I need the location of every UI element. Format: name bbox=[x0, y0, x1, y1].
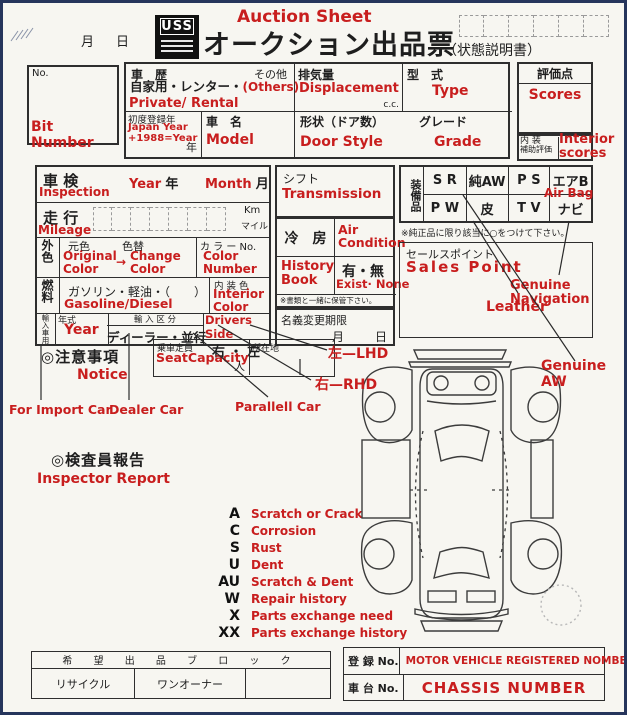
auction-sheet: 月 日 USS Auction Sheet オークション出品票 （状態説明書） … bbox=[0, 0, 627, 715]
location-cell: 所在地 bbox=[249, 340, 333, 375]
seat-unit-label: 人 bbox=[234, 358, 245, 374]
history-options-red: (Others) bbox=[243, 80, 300, 94]
import-car-label: 輸入車用 bbox=[40, 314, 51, 344]
seat-capacity-box: 乗車定員 SeatCapacity 人 所在地 bbox=[153, 339, 335, 377]
fuel-label: 燃料 bbox=[39, 279, 56, 311]
original-color-annotation: Original Color bbox=[63, 250, 119, 275]
inspector-report-annotation: Inspector Report bbox=[37, 471, 170, 487]
genuine-aw-annotation: Genuine AW bbox=[541, 358, 624, 390]
legend-item: UDent bbox=[206, 557, 407, 574]
color-arrow: → bbox=[116, 255, 126, 269]
interior-color-cell: 内 装 色 Interior Color bbox=[209, 277, 270, 313]
ac-history-box: 冷 房 Air Condition History Book 有・無 Exist… bbox=[275, 217, 395, 308]
page-title: オークション出品票 bbox=[203, 23, 455, 62]
rhd-annotation: 右—RHD bbox=[315, 374, 377, 394]
chassis-no-annotation: CHASSIS NUMBER bbox=[404, 675, 604, 700]
legend-code: S bbox=[206, 540, 240, 556]
mile-label: マイル bbox=[241, 219, 268, 232]
history-options: 自家用・レンター・(Others) bbox=[130, 80, 299, 94]
displacement-annotation: Displacement bbox=[299, 81, 399, 96]
page-subtitle: （状態説明書） bbox=[443, 40, 541, 60]
registration-no-label: 登 録 No. bbox=[344, 648, 400, 674]
pencil-mark bbox=[11, 28, 33, 41]
fuel-annotation: Gasoline/Diesel bbox=[64, 296, 173, 311]
interior-scores-annotation: Interior scores bbox=[559, 133, 621, 160]
color-number-annotation: Color Number bbox=[203, 250, 263, 275]
legend-code: X bbox=[206, 608, 240, 624]
bit-number-annotation: Bit Number bbox=[31, 119, 117, 151]
history-annotation: Private/ Rental bbox=[129, 96, 238, 111]
legend-item: CCorrosion bbox=[206, 523, 407, 540]
legend-item: XXParts exchange history bbox=[206, 625, 407, 642]
interior-label-2: 補助評価 bbox=[520, 146, 558, 154]
dealer-car-annotation: Dealer Car bbox=[109, 402, 183, 417]
recycle-cell: リサイクル bbox=[32, 669, 135, 698]
seat-capacity-cell: 乗車定員 SeatCapacity 人 bbox=[154, 340, 250, 375]
ac-label: 冷 房 bbox=[285, 228, 327, 248]
legend-item: AScratch or Crack bbox=[206, 506, 407, 523]
vehicle-info-box: 車 歴 その他 自家用・レンター・(Others) Private/ Renta… bbox=[124, 62, 510, 159]
change-color-annotation: Change Color bbox=[130, 250, 186, 275]
history-cell: 車 歴 その他 自家用・レンター・(Others) Private/ Renta… bbox=[126, 64, 295, 112]
inspector-report-label: ◎検査員報告 bbox=[51, 449, 145, 470]
lhd-annotation: 左—LHD bbox=[328, 343, 388, 363]
inspection-month: Month 月 bbox=[205, 173, 269, 192]
genuine-parts-note: ※純正品に限り該当に○をつけて下さい。 bbox=[401, 226, 569, 239]
cc-unit-label: c.c. bbox=[383, 100, 399, 110]
leather-annotation: Leather bbox=[486, 299, 547, 315]
header-code-boxes bbox=[459, 15, 609, 37]
block-header: 希 望 出 品 ブ ロ ッ ク bbox=[32, 652, 330, 669]
legend-desc: Parts exchange history bbox=[251, 626, 407, 640]
inspection-annotation: Inspection bbox=[39, 185, 110, 199]
legend-code: U bbox=[206, 557, 240, 573]
equip-sunroof: S R bbox=[424, 167, 466, 194]
legend-desc: Repair history bbox=[251, 592, 347, 606]
month-label: 月 bbox=[81, 31, 94, 50]
transmission-annotation: Transmission bbox=[282, 186, 381, 202]
uss-logo-text: USS bbox=[160, 18, 194, 35]
shift-label: シフト bbox=[283, 170, 319, 187]
equip-power-steering: P S bbox=[508, 167, 550, 194]
history-book-cell: History Book bbox=[277, 256, 335, 294]
legend-item: WRepair history bbox=[206, 591, 407, 608]
for-import-car-annotation: For Import Car bbox=[9, 402, 112, 417]
interior-score-label: 内 装 補助評価 bbox=[520, 137, 559, 159]
import-class-label: 輸 入 区 分 bbox=[107, 313, 203, 326]
legend-desc: Dent bbox=[251, 558, 283, 572]
inspection-year: Year 年 bbox=[129, 173, 178, 192]
transmission-box: シフト Transmission bbox=[275, 165, 395, 218]
door-style-annotation: Door Style bbox=[300, 134, 383, 150]
damage-legend: AScratch or Crack CCorrosion SRust UDent… bbox=[206, 506, 407, 642]
legend-code: XX bbox=[206, 625, 240, 641]
left-column-box: 車 検 Inspection Year 年 Month 月 走 行 Mileag… bbox=[35, 165, 271, 346]
model-annotation: Model bbox=[206, 132, 254, 148]
history-options-black: 自家用・レンター・ bbox=[130, 79, 243, 94]
displacement-cell: 排気量 Displacement c.c. bbox=[294, 64, 403, 112]
grade-label: グレード bbox=[419, 113, 467, 130]
equipment-label: 装備品 bbox=[401, 167, 424, 221]
scores-box: 評価点 Scores bbox=[517, 62, 593, 134]
block-box: 希 望 出 品 ブ ロ ッ ク リサイクル ワンオーナー bbox=[31, 651, 331, 699]
type-annotation: Type bbox=[432, 83, 469, 99]
legend-item: XParts exchange need bbox=[206, 608, 407, 625]
legend-item: AUScratch & Dent bbox=[206, 574, 407, 591]
registration-no-annotation: MOTOR VEHICLE REGISTERED NOMBER bbox=[400, 648, 627, 674]
type-cell: 型 式 Type bbox=[402, 64, 512, 112]
interior-color-annotation: Interior Color bbox=[213, 288, 269, 313]
km-label: Km bbox=[244, 205, 260, 216]
ac-annotation-cell: Air Condition bbox=[334, 219, 393, 257]
model-label: 車 名 bbox=[206, 113, 242, 130]
legend-code: AU bbox=[206, 574, 240, 590]
exist-none-cell: 有・無 Exist· None bbox=[334, 256, 393, 294]
first-registration-cell: 初度登録年 Japan Year +1988=Year 年 bbox=[126, 111, 202, 157]
legend-item: SRust bbox=[206, 540, 407, 557]
exterior-color-row: 外色 元色 色替 Original Color → Change Color カ… bbox=[37, 237, 269, 278]
fuel-row: 燃料 ガソリン・軽油・（ ） Gasoline/Diesel 内 装 色 Int… bbox=[37, 277, 269, 314]
history-book-annotation: History Book bbox=[281, 260, 333, 287]
inspection-row: 車 検 Inspection Year 年 Month 月 bbox=[37, 167, 269, 203]
day-label: 日 bbox=[116, 31, 129, 50]
one-owner-cell: ワンオーナー bbox=[135, 669, 246, 698]
sales-point-box: セールスポイント Sales Point Genuine Navigation … bbox=[399, 242, 593, 338]
grade-annotation: Grade bbox=[434, 134, 481, 150]
mileage-annotation: Mileage bbox=[38, 223, 91, 237]
year-cell: 年式 Year bbox=[55, 313, 109, 344]
year-model-annotation: Year bbox=[64, 322, 99, 338]
color-change-cell: 元色 色替 Original Color → Change Color bbox=[59, 237, 197, 277]
month-annotation: Month bbox=[205, 177, 252, 192]
equip-power-window: P W bbox=[424, 194, 466, 221]
empty-cell bbox=[246, 669, 330, 698]
legend-code: C bbox=[206, 523, 240, 539]
door-style-label: 形状（ドア数） bbox=[300, 113, 384, 130]
ac-cell: 冷 房 bbox=[277, 219, 335, 257]
uss-logo: USS bbox=[155, 15, 199, 59]
mileage-digit-boxes bbox=[93, 207, 226, 231]
mileage-row: 走 行 Mileage Km マイル bbox=[37, 202, 269, 238]
year-kanji: 年 bbox=[165, 177, 178, 192]
registration-box: 登 録 No. MOTOR VEHICLE REGISTERED NOMBER … bbox=[343, 647, 605, 701]
type-label: 型 式 bbox=[407, 66, 443, 83]
keep-documents-note: ※書類と一緒に保管下さい。 bbox=[277, 294, 396, 308]
year-annotation: Year bbox=[129, 177, 161, 192]
legend-desc: Scratch or Crack bbox=[251, 507, 363, 521]
month-kanji: 月 bbox=[256, 177, 269, 192]
equip-leather: 皮 bbox=[466, 194, 508, 221]
notice-annotation: Notice bbox=[77, 367, 128, 383]
model-cell: 車 名 Model bbox=[201, 111, 295, 157]
bit-no-label: No. bbox=[32, 68, 49, 79]
drivers-side-annotation: Drivers Side bbox=[205, 313, 269, 341]
location-label: 所在地 bbox=[252, 341, 279, 354]
legend-code: A bbox=[206, 506, 240, 522]
chassis-no-label: 車 台 No. bbox=[344, 675, 404, 700]
year-suffix-label: 年 bbox=[186, 139, 197, 155]
scores-annotation: Scores bbox=[519, 87, 591, 103]
legend-desc: Parts exchange need bbox=[251, 609, 393, 623]
color-number-cell: カ ラ ー No. Color Number bbox=[195, 237, 269, 277]
door-grade-cell: 形状（ドア数） グレード Door Style Grade bbox=[294, 111, 512, 157]
fuel-options-cell: ガソリン・軽油・（ ） Gasoline/Diesel bbox=[59, 277, 210, 313]
first-registration-annotation-1: Japan Year bbox=[128, 123, 188, 134]
equip-tv: T V bbox=[508, 194, 550, 221]
air-condition-annotation: Air Condition bbox=[338, 223, 388, 249]
equip-genuine-aw: 純AW bbox=[466, 167, 508, 194]
legend-desc: Scratch & Dent bbox=[251, 575, 353, 589]
exterior-color-label: 外色 bbox=[39, 239, 56, 275]
bit-number-box: No. Bit Number bbox=[27, 65, 119, 145]
legend-code: W bbox=[206, 591, 240, 607]
parallel-car-annotation: Parallell Car bbox=[235, 399, 321, 414]
sales-point-annotation: Sales Point bbox=[406, 258, 523, 276]
legend-desc: Rust bbox=[251, 541, 282, 555]
name-change-label: 名義変更期限 bbox=[281, 312, 347, 328]
legend-desc: Corrosion bbox=[251, 524, 316, 538]
notice-label: ◎注意事項 bbox=[41, 346, 119, 367]
uss-logo-sub-lines bbox=[161, 37, 193, 52]
scores-label: 評価点 bbox=[519, 64, 591, 84]
airbag-annotation: Air Bag bbox=[544, 186, 593, 200]
